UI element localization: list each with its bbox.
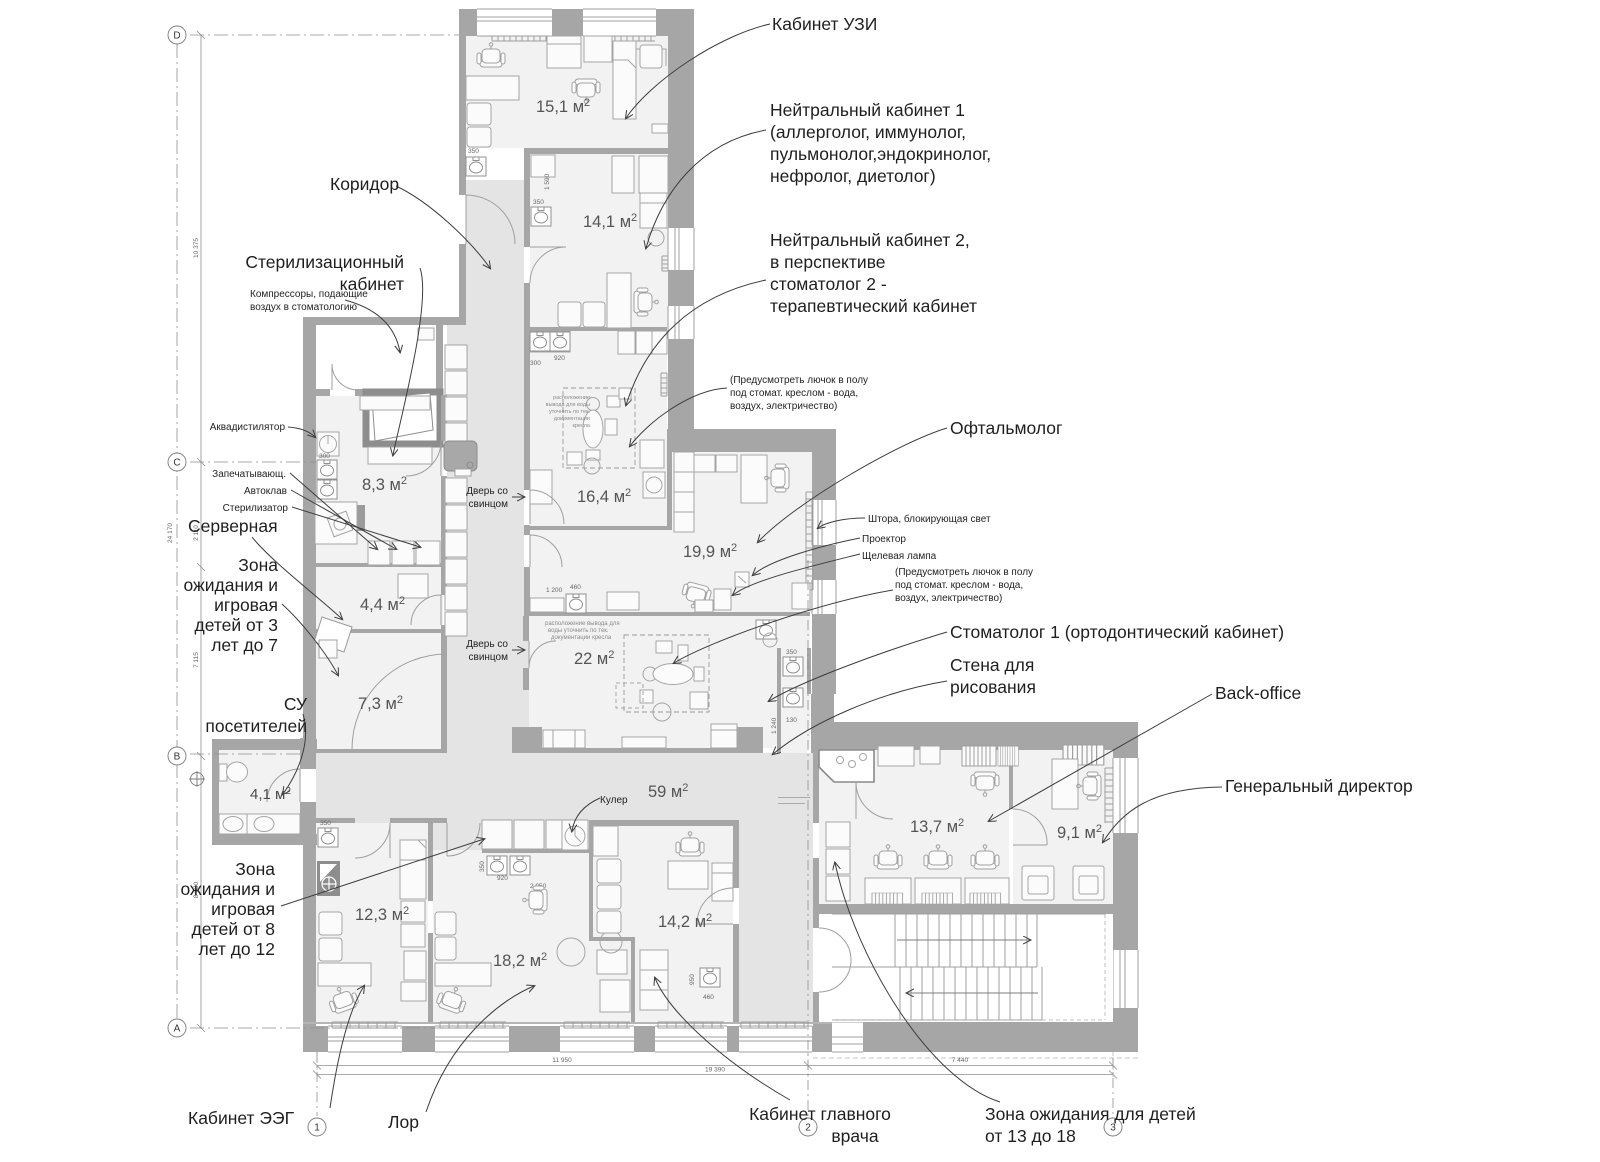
svg-text:Автоклав: Автоклав	[244, 486, 287, 497]
svg-text:расположение вывода для: расположение вывода для	[545, 621, 620, 627]
svg-text:Кабинет УЗИ: Кабинет УЗИ	[772, 14, 877, 34]
svg-text:1 590: 1 590	[544, 173, 551, 190]
svg-text:B: B	[174, 752, 181, 763]
svg-text:Компрессоры, подающие: Компрессоры, подающие	[250, 289, 368, 300]
svg-text:Зона ожидания для детей: Зона ожидания для детей	[985, 1104, 1196, 1124]
svg-text:вывода для воды: вывода для воды	[546, 402, 590, 408]
svg-text:лет до 7: лет до 7	[211, 635, 278, 655]
svg-text:7,3 м2: 7,3 м2	[358, 694, 403, 713]
svg-text:350: 350	[533, 199, 544, 206]
svg-text:1: 1	[314, 1123, 320, 1134]
svg-text:воздух, электричество): воздух, электричество)	[895, 593, 1002, 604]
svg-text:врача: врача	[831, 1126, 878, 1146]
svg-text:документации: документации	[554, 416, 590, 422]
svg-text:ожидания и: ожидания и	[183, 575, 278, 595]
svg-text:1 240: 1 240	[771, 717, 778, 734]
svg-text:Штора, блокирующая свет: Штора, блокирующая свет	[868, 513, 991, 525]
svg-text:3: 3	[1110, 1123, 1116, 1134]
svg-text:СУ: СУ	[284, 694, 308, 714]
svg-text:ожидания и: ожидания и	[180, 879, 275, 899]
svg-text:Коридор: Коридор	[330, 174, 399, 194]
svg-text:14,1 м2: 14,1 м2	[583, 212, 637, 231]
svg-text:Лор: Лор	[388, 1112, 419, 1132]
svg-text:C: C	[173, 458, 180, 469]
svg-text:лет до 12: лет до 12	[198, 939, 275, 959]
svg-text:1 200: 1 200	[546, 587, 563, 594]
svg-text:Офтальмолог: Офтальмолог	[950, 418, 1062, 438]
svg-text:документации кресла: документации кресла	[551, 635, 612, 641]
svg-text:игровая: игровая	[211, 899, 275, 919]
svg-text:игровая: игровая	[214, 595, 278, 615]
svg-text:4,4 м2: 4,4 м2	[360, 595, 405, 614]
svg-text:Back-office: Back-office	[1215, 683, 1301, 703]
svg-text:460: 460	[703, 994, 714, 1001]
svg-text:Аквадистилятор: Аквадистилятор	[210, 422, 286, 433]
svg-text:уточнить по тек.: уточнить по тек.	[549, 409, 591, 415]
svg-text:посетителей: посетителей	[205, 716, 307, 736]
svg-text:14,2 м2: 14,2 м2	[658, 912, 712, 931]
svg-text:под стомат. креслом - вода,: под стомат. креслом - вода,	[895, 580, 1023, 591]
svg-text:4,1 м2: 4,1 м2	[250, 786, 291, 803]
svg-text:Кабинет главного: Кабинет главного	[749, 1104, 891, 1124]
svg-text:24 170: 24 170	[167, 523, 174, 543]
svg-text:8,3 м2: 8,3 м2	[362, 475, 407, 494]
svg-text:детей от 3: детей от 3	[194, 615, 278, 635]
svg-text:воды уточнить по тек.: воды уточнить по тек.	[548, 628, 609, 634]
svg-text:350: 350	[468, 148, 479, 155]
svg-text:460: 460	[570, 584, 581, 591]
svg-text:300: 300	[319, 453, 330, 460]
svg-text:920: 920	[497, 875, 508, 882]
svg-text:D: D	[173, 31, 180, 42]
svg-text:130: 130	[786, 717, 797, 724]
svg-text:19 390: 19 390	[705, 1067, 725, 1074]
svg-text:под стомат. креслом - вода,: под стомат. креслом - вода,	[730, 388, 858, 399]
svg-text:15,1 м2: 15,1 м2	[536, 97, 590, 116]
svg-text:Проектор: Проектор	[862, 534, 906, 545]
svg-text:Зона: Зона	[235, 859, 275, 879]
svg-text:терапевтический кабинет: терапевтический кабинет	[770, 296, 977, 316]
svg-text:7 115: 7 115	[193, 652, 200, 668]
svg-text:свинцом: свинцом	[469, 499, 509, 510]
svg-text:16,4 м2: 16,4 м2	[577, 487, 631, 506]
svg-text:300: 300	[530, 360, 541, 367]
svg-text:Дверь со: Дверь со	[466, 486, 508, 497]
svg-text:воздух в стоматологию: воздух в стоматологию	[250, 302, 358, 313]
svg-text:Кулер: Кулер	[600, 795, 628, 806]
svg-text:от 13 до 18: от 13 до 18	[985, 1126, 1076, 1146]
svg-text:Серверная: Серверная	[188, 516, 278, 536]
svg-text:7 440: 7 440	[952, 1057, 969, 1064]
svg-text:12,3 м2: 12,3 м2	[355, 905, 409, 924]
svg-text:(аллерголог, иммунолог,: (аллерголог, иммунолог,	[770, 122, 966, 142]
svg-text:стоматолог 2 -: стоматолог 2 -	[770, 274, 887, 294]
svg-text:(Предусмотреть лючок в полу: (Предусмотреть лючок в полу	[895, 567, 1033, 578]
svg-text:Стерилизационный: Стерилизационный	[245, 252, 404, 272]
svg-text:кресла: кресла	[572, 423, 590, 429]
svg-text:950: 950	[689, 974, 696, 985]
svg-text:350: 350	[320, 820, 331, 827]
svg-text:Генеральный директор: Генеральный директор	[1225, 776, 1413, 796]
svg-text:свинцом: свинцом	[469, 652, 509, 663]
svg-text:Стерилизатор: Стерилизатор	[223, 503, 289, 514]
svg-text:рисования: рисования	[950, 677, 1036, 697]
svg-text:(Предусмотреть лючок в полу: (Предусмотреть лючок в полу	[730, 375, 868, 386]
svg-text:2: 2	[805, 1123, 811, 1134]
svg-text:11 950: 11 950	[552, 1057, 572, 1064]
svg-text:Щелевая лампа: Щелевая лампа	[862, 551, 937, 562]
svg-text:Стена для: Стена для	[950, 655, 1034, 675]
svg-text:A: A	[174, 1024, 181, 1035]
svg-text:в перспективе: в перспективе	[770, 252, 886, 272]
svg-text:Стоматолог 1 (ортодонтический: Стоматолог 1 (ортодонтический кабинет)	[950, 622, 1284, 642]
svg-text:10 375: 10 375	[193, 238, 200, 258]
svg-text:пульмонолог,эндокринолог,: пульмонолог,эндокринолог,	[770, 144, 991, 164]
svg-text:нефролог, диетолог): нефролог, диетолог)	[770, 166, 936, 186]
svg-text:Нейтральный кабинет 1: Нейтральный кабинет 1	[770, 100, 965, 120]
svg-text:Зона: Зона	[238, 555, 278, 575]
svg-text:19,9 м2: 19,9 м2	[683, 542, 737, 561]
svg-text:Нейтральный кабинет 2,: Нейтральный кабинет 2,	[770, 230, 970, 250]
svg-text:воздух, электричество): воздух, электричество)	[730, 401, 837, 412]
svg-text:920: 920	[554, 355, 565, 362]
svg-text:Кабинет ЭЭГ: Кабинет ЭЭГ	[188, 1108, 295, 1128]
svg-text:расположение: расположение	[553, 395, 590, 401]
svg-text:детей от 8: детей от 8	[191, 919, 275, 939]
svg-text:13,7 м2: 13,7 м2	[910, 817, 964, 836]
svg-text:350: 350	[786, 649, 797, 656]
svg-text:18,2 м2: 18,2 м2	[493, 951, 547, 970]
svg-text:350: 350	[479, 861, 486, 872]
svg-text:Запечатывающ.: Запечатывающ.	[212, 469, 286, 480]
svg-text:Дверь со: Дверь со	[466, 639, 508, 650]
svg-text:9,1 м2: 9,1 м2	[1057, 823, 1102, 842]
